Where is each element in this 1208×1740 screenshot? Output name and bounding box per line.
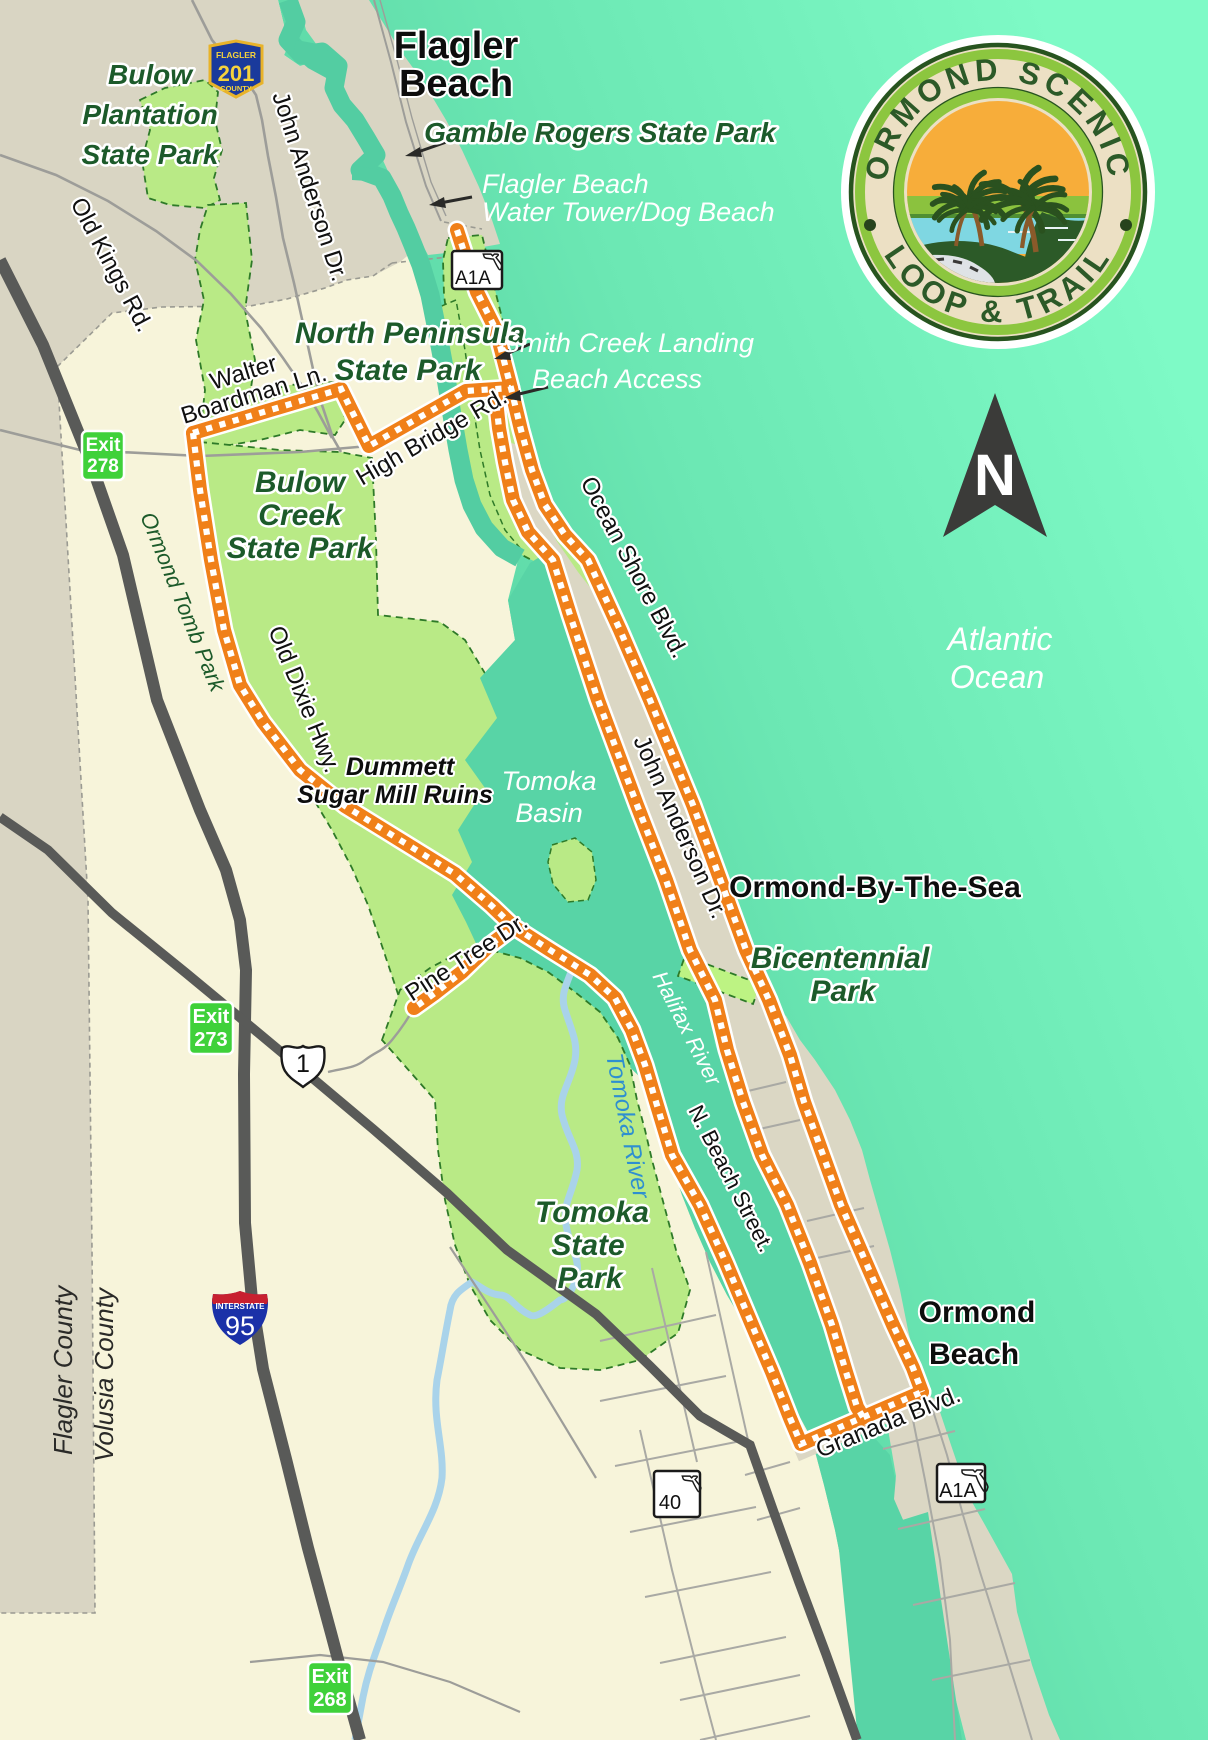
- svg-text:INTERSTATE: INTERSTATE: [215, 1302, 265, 1311]
- svg-text:Dummett: Dummett: [346, 753, 456, 781]
- svg-text:Exit: Exit: [86, 435, 122, 456]
- svg-text:40: 40: [659, 1492, 681, 1514]
- svg-text:Park: Park: [810, 975, 876, 1008]
- svg-text:A1A: A1A: [939, 1480, 977, 1502]
- svg-text:North Peninsula: North Peninsula: [295, 317, 525, 350]
- svg-text:Gamble Rogers State Park: Gamble Rogers State Park: [424, 117, 777, 148]
- svg-text:A1A: A1A: [455, 268, 491, 289]
- svg-text:Volusia County: Volusia County: [89, 1286, 119, 1462]
- svg-text:201: 201: [218, 61, 255, 86]
- svg-text:Smith Creek Landing: Smith Creek Landing: [502, 328, 754, 358]
- svg-text:Plantation: Plantation: [82, 99, 217, 130]
- svg-text:Bulow: Bulow: [108, 59, 194, 90]
- svg-text:95: 95: [225, 1311, 255, 1341]
- svg-text:COUNTY: COUNTY: [220, 84, 252, 93]
- svg-text:Beach Access: Beach Access: [532, 364, 702, 394]
- svg-text:Exit: Exit: [312, 1666, 349, 1688]
- svg-text:State Park: State Park: [227, 532, 375, 565]
- svg-text:State Park: State Park: [82, 139, 220, 170]
- svg-text:Atlantic: Atlantic: [946, 621, 1053, 657]
- svg-text:273: 273: [194, 1029, 227, 1051]
- svg-text:Exit: Exit: [193, 1006, 230, 1028]
- svg-text:Ormond: Ormond: [919, 1296, 1036, 1329]
- svg-text:268: 268: [313, 1689, 346, 1711]
- svg-text:FLAGLER: FLAGLER: [216, 50, 256, 60]
- svg-text:Beach: Beach: [399, 63, 513, 105]
- svg-text:Ormond-By-The-Sea: Ormond-By-The-Sea: [729, 871, 1021, 904]
- svg-text:Sugar Mill Ruins: Sugar Mill Ruins: [297, 781, 493, 809]
- svg-text:Tomoka: Tomoka: [535, 1196, 649, 1229]
- svg-text:Water Tower/Dog Beach: Water Tower/Dog Beach: [482, 197, 775, 227]
- svg-text:Bulow: Bulow: [255, 466, 347, 499]
- svg-text:State: State: [551, 1229, 624, 1262]
- svg-text:1: 1: [296, 1050, 310, 1078]
- svg-text:Bicentennial: Bicentennial: [751, 942, 930, 975]
- svg-text:Basin: Basin: [515, 798, 583, 828]
- svg-text:Ocean: Ocean: [950, 659, 1044, 695]
- svg-text:Creek: Creek: [258, 499, 343, 532]
- svg-text:N: N: [974, 443, 1016, 508]
- svg-text:Tomoka: Tomoka: [501, 766, 596, 796]
- svg-text:Flagler: Flagler: [394, 25, 519, 67]
- svg-text:Beach: Beach: [929, 1338, 1019, 1371]
- svg-text:Flagler Beach: Flagler Beach: [482, 169, 649, 199]
- svg-text:State Park: State Park: [335, 354, 483, 387]
- svg-text:Flagler County: Flagler County: [48, 1284, 78, 1455]
- svg-text:Park: Park: [557, 1262, 623, 1295]
- svg-text:278: 278: [87, 456, 119, 477]
